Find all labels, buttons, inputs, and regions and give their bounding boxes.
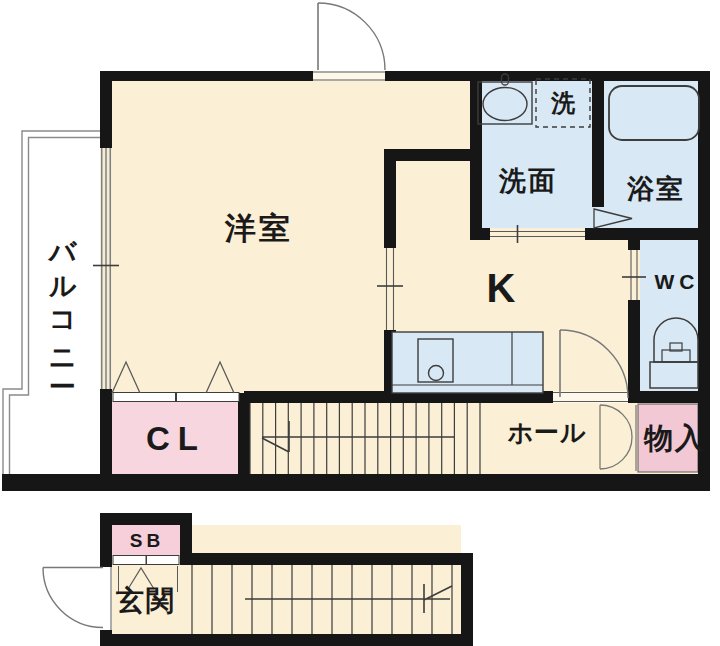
room-bathroom xyxy=(604,80,698,228)
top-door xyxy=(313,3,385,81)
room-label-western-room: 洋室 xyxy=(225,213,293,244)
room-label-storage: 物入 xyxy=(644,424,706,453)
room-label-bathroom: 浴室 xyxy=(627,176,685,203)
room-washroom xyxy=(482,80,592,228)
room-label-wc: WC xyxy=(655,271,700,292)
room-label-kitchen: K xyxy=(487,268,516,308)
room-label-balcony: バルコニー xyxy=(49,220,76,378)
room-label-entrance: 玄関 xyxy=(116,587,176,615)
entrance-door xyxy=(43,567,111,630)
kitchen-counter xyxy=(392,332,543,393)
room-label-washroom: 洗面 xyxy=(499,168,557,195)
floor-plan: バルコニー 洋室 洗面 洗 浴室 K WC CL ホール 物入 SB 玄関 xyxy=(0,0,720,646)
room-label-closet: CL xyxy=(146,422,206,455)
room-label-washer: 洗 xyxy=(551,91,575,115)
room-wc xyxy=(640,240,698,391)
room-label-shoebox: SB xyxy=(130,531,164,550)
floor-plan-drawing xyxy=(0,0,720,646)
room-label-hall: ホール xyxy=(507,420,586,445)
